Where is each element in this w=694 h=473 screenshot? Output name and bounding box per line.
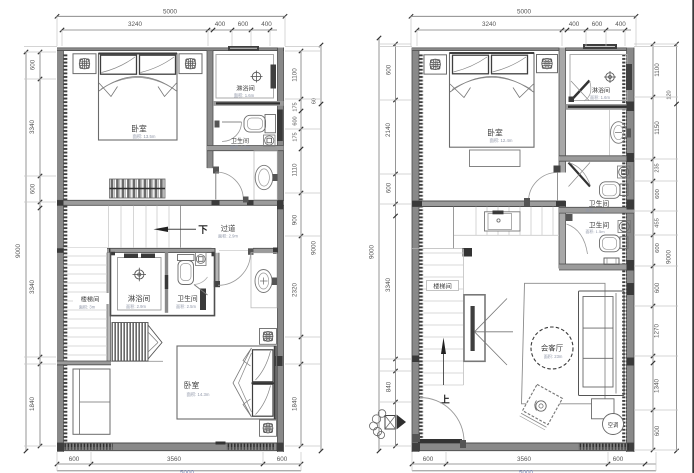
svg-text:600: 600: [30, 183, 37, 194]
svg-text:面积: 1.5m: 面积: 1.5m: [585, 228, 605, 234]
svg-text:面积: 23m: 面积: 23m: [544, 353, 563, 360]
svg-text:600: 600: [69, 456, 80, 463]
svg-text:9000: 9000: [369, 245, 376, 260]
svg-text:600: 600: [655, 243, 661, 253]
svg-text:2320: 2320: [292, 283, 299, 298]
svg-text:1100: 1100: [654, 63, 661, 77]
svg-text:5000: 5000: [517, 9, 532, 16]
svg-text:面积: 12.4m: 面积: 12.4m: [490, 137, 513, 144]
svg-text:3240: 3240: [482, 21, 497, 28]
svg-text:600: 600: [386, 182, 393, 193]
svg-text:600: 600: [654, 282, 661, 293]
svg-text:面积: 2.5m: 面积: 2.5m: [176, 303, 197, 310]
svg-text:3560: 3560: [517, 456, 532, 463]
svg-text:3560: 3560: [167, 456, 182, 463]
svg-text:3340: 3340: [29, 280, 36, 295]
svg-text:600: 600: [654, 425, 661, 436]
svg-text:淋浴间: 淋浴间: [236, 85, 255, 93]
svg-text:9000: 9000: [666, 250, 673, 265]
svg-text:3340: 3340: [29, 120, 36, 135]
svg-text:面积: 2.9m: 面积: 2.9m: [126, 303, 147, 310]
svg-text:面积: 1.6m: 面积: 1.6m: [234, 92, 255, 99]
svg-text:5000: 5000: [163, 9, 178, 16]
svg-text:900: 900: [292, 214, 299, 225]
svg-text:卫生间: 卫生间: [177, 294, 198, 303]
svg-text:1150: 1150: [654, 121, 661, 135]
svg-text:面积: 14.3m: 面积: 14.3m: [187, 391, 210, 398]
svg-text:120: 120: [667, 90, 673, 99]
svg-text:卧室: 卧室: [487, 128, 503, 138]
svg-text:3240: 3240: [128, 21, 143, 28]
svg-text:1840: 1840: [29, 397, 36, 412]
svg-text:9000: 9000: [15, 244, 22, 259]
svg-text:175: 175: [293, 102, 299, 111]
svg-text:235: 235: [655, 163, 661, 172]
svg-text:2140: 2140: [385, 123, 392, 138]
svg-text:600: 600: [423, 456, 434, 463]
svg-text:面积: 2.5m: 面积: 2.5m: [230, 144, 251, 151]
svg-text:上: 上: [440, 394, 450, 406]
svg-text:淋浴间: 淋浴间: [592, 87, 610, 95]
svg-text:600: 600: [238, 21, 249, 28]
svg-text:600: 600: [277, 456, 288, 463]
svg-text:455: 455: [655, 218, 661, 228]
svg-text:过道: 过道: [221, 224, 236, 233]
svg-text:5000: 5000: [180, 470, 195, 473]
svg-text:下: 下: [198, 225, 208, 236]
svg-text:楼梯间: 楼梯间: [433, 283, 452, 291]
svg-text:600: 600: [386, 64, 393, 75]
svg-text:面积: 3m: 面积: 3m: [79, 304, 96, 311]
svg-text:面积: 13.5m: 面积: 13.5m: [133, 133, 156, 140]
svg-text:400: 400: [261, 21, 272, 28]
svg-text:840: 840: [386, 381, 393, 392]
svg-text:面积: 2.9m: 面积: 2.9m: [218, 233, 239, 240]
svg-text:卧室: 卧室: [131, 124, 147, 134]
svg-text:600: 600: [30, 59, 37, 70]
svg-text:3340: 3340: [385, 278, 392, 293]
svg-text:175: 175: [293, 132, 299, 141]
svg-text:1840: 1840: [292, 397, 299, 412]
svg-text:9000: 9000: [311, 241, 318, 256]
svg-text:600: 600: [613, 456, 624, 463]
svg-text:面积: 1.9m: 面积: 1.9m: [585, 206, 605, 212]
svg-text:400: 400: [569, 21, 580, 28]
svg-text:空调: 空调: [608, 421, 619, 429]
svg-text:600: 600: [293, 116, 299, 125]
svg-text:卧室: 卧室: [184, 380, 200, 390]
svg-text:会客厅: 会客厅: [541, 344, 564, 353]
svg-text:600: 600: [592, 21, 603, 28]
svg-text:1100: 1100: [292, 68, 299, 82]
svg-text:楼梯间: 楼梯间: [81, 296, 100, 304]
svg-text:面积: 1.6m: 面积: 1.6m: [590, 94, 611, 101]
svg-text:淋浴间: 淋浴间: [128, 294, 150, 303]
svg-text:400: 400: [615, 21, 626, 28]
svg-text:600: 600: [655, 189, 661, 199]
svg-text:卫生间: 卫生间: [231, 137, 249, 145]
svg-text:1110: 1110: [292, 163, 299, 177]
svg-text:400: 400: [215, 21, 226, 28]
svg-text:1270: 1270: [654, 324, 661, 339]
svg-text:5000: 5000: [519, 470, 534, 473]
svg-text:1340: 1340: [654, 379, 661, 394]
